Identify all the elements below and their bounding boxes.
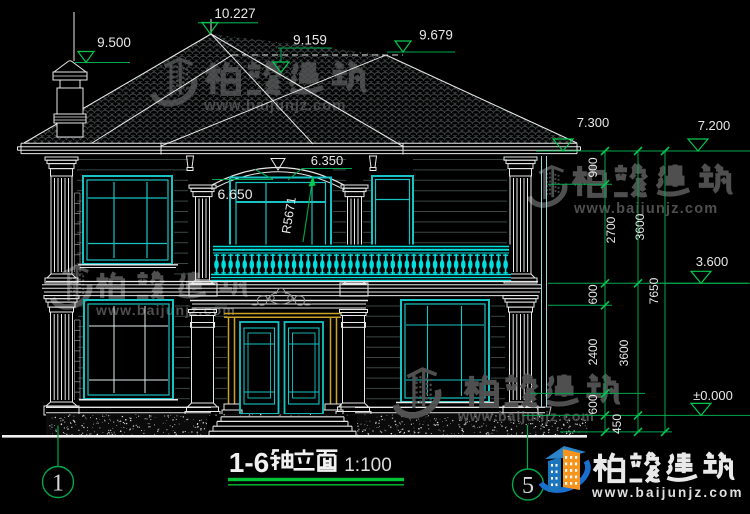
svg-text:2400: 2400 (586, 338, 600, 365)
svg-text:10.227: 10.227 (214, 6, 255, 21)
svg-text:3600: 3600 (633, 213, 647, 240)
svg-text:600: 600 (586, 394, 600, 414)
svg-text:7.300: 7.300 (577, 115, 610, 130)
svg-text:7.200: 7.200 (698, 118, 731, 133)
svg-text:6.350: 6.350 (311, 153, 344, 168)
svg-text:1-6: 1-6 (229, 447, 269, 478)
svg-text:9.159: 9.159 (293, 33, 327, 48)
svg-text:6.650: 6.650 (217, 186, 252, 202)
svg-text:±0.000: ±0.000 (693, 388, 733, 403)
svg-text:1:100: 1:100 (344, 455, 392, 476)
svg-text:3.600: 3.600 (696, 254, 729, 269)
svg-text:7650: 7650 (647, 277, 661, 304)
svg-text:9.679: 9.679 (419, 28, 453, 43)
svg-text:600: 600 (586, 284, 600, 304)
svg-text:450: 450 (610, 414, 624, 434)
svg-text:3600: 3600 (617, 339, 631, 366)
svg-text:900: 900 (586, 157, 600, 177)
svg-text:1: 1 (52, 471, 64, 497)
svg-text:www.baijunjz.com: www.baijunjz.com (591, 485, 744, 500)
svg-text:www.baijunjz.com: www.baijunjz.com (457, 408, 595, 424)
svg-text:9.500: 9.500 (97, 35, 131, 50)
svg-text:5: 5 (522, 473, 534, 499)
svg-text:2700: 2700 (604, 216, 618, 243)
